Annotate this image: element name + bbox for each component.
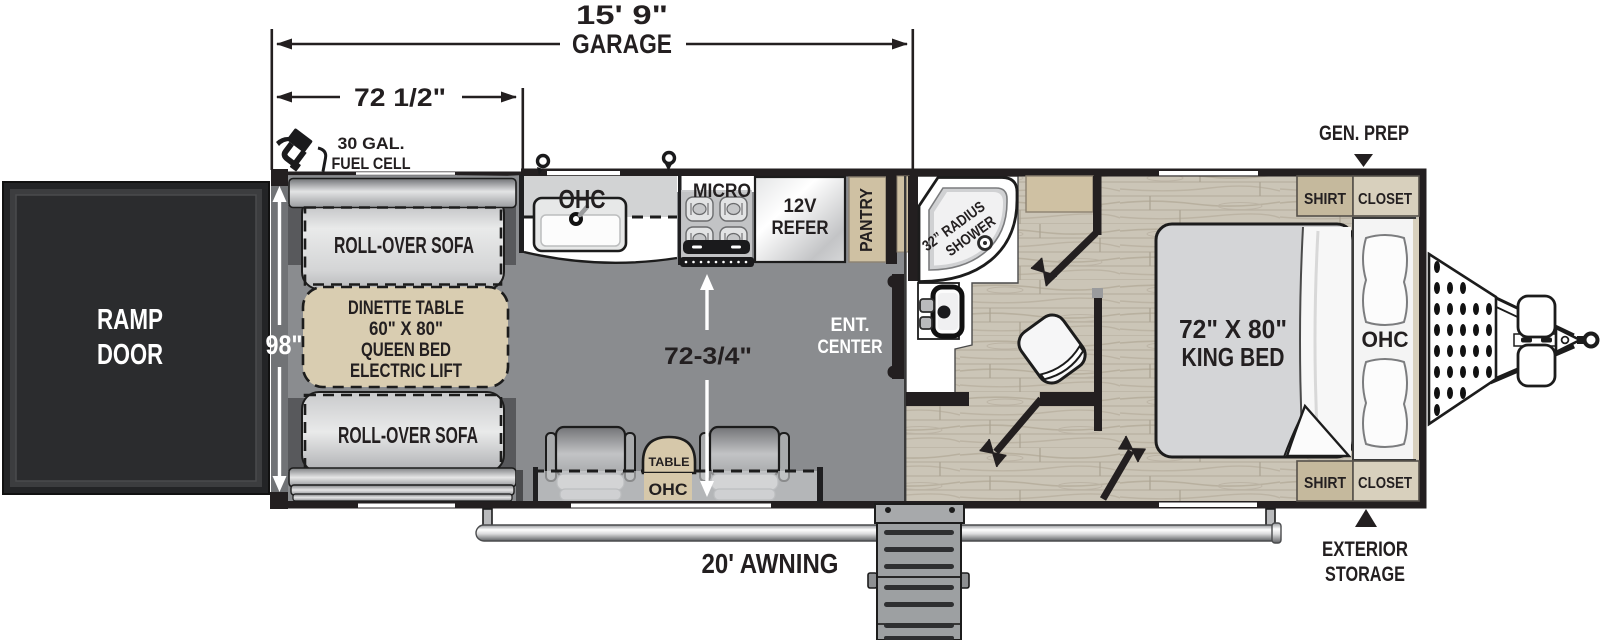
svg-text:OHC: OHC [559, 184, 606, 214]
svg-text:98": 98" [266, 330, 303, 360]
svg-text:ELECTRIC LIFT: ELECTRIC LIFT [350, 361, 462, 382]
svg-text:SHIRT: SHIRT [1304, 191, 1346, 208]
svg-text:20' AWNING: 20' AWNING [702, 548, 839, 579]
svg-text:EXTERIOR: EXTERIOR [1322, 538, 1408, 561]
svg-text:GEN. PREP: GEN. PREP [1319, 121, 1409, 145]
svg-text:60" X 80": 60" X 80" [369, 319, 443, 340]
svg-text:OHC: OHC [649, 480, 688, 499]
svg-text:GARAGE: GARAGE [572, 29, 672, 59]
svg-text:ENT.: ENT. [831, 314, 870, 336]
svg-text:CLOSET: CLOSET [1358, 475, 1412, 492]
svg-text:FUEL CELL: FUEL CELL [332, 155, 411, 173]
svg-text:PANTRY: PANTRY [856, 188, 876, 252]
svg-text:ROLL-OVER SOFA: ROLL-OVER SOFA [338, 422, 478, 448]
svg-text:SHIRT: SHIRT [1304, 475, 1346, 492]
svg-text:ROLL-OVER SOFA: ROLL-OVER SOFA [334, 232, 474, 258]
svg-text:TABLE: TABLE [649, 455, 690, 469]
svg-text:72 1/2": 72 1/2" [354, 84, 446, 112]
svg-text:DINETTE TABLE: DINETTE TABLE [348, 298, 464, 319]
svg-text:KING BED: KING BED [1182, 342, 1285, 372]
svg-text:15' 9": 15' 9" [576, 0, 668, 30]
svg-text:30 GAL.: 30 GAL. [338, 135, 405, 153]
svg-text:72" X 80": 72" X 80" [1179, 314, 1287, 344]
svg-text:STORAGE: STORAGE [1325, 563, 1405, 586]
svg-text:DOOR: DOOR [97, 339, 163, 371]
svg-text:RAMP: RAMP [97, 304, 163, 336]
svg-text:REFER: REFER [772, 217, 829, 239]
svg-text:MICRO: MICRO [693, 181, 751, 202]
svg-text:72-3/4": 72-3/4" [664, 343, 752, 370]
svg-text:QUEEN BED: QUEEN BED [361, 340, 451, 361]
svg-text:CENTER: CENTER [818, 336, 883, 358]
svg-text:OHC: OHC [1362, 327, 1409, 352]
svg-text:12V: 12V [784, 195, 817, 217]
svg-text:CLOSET: CLOSET [1358, 191, 1412, 208]
